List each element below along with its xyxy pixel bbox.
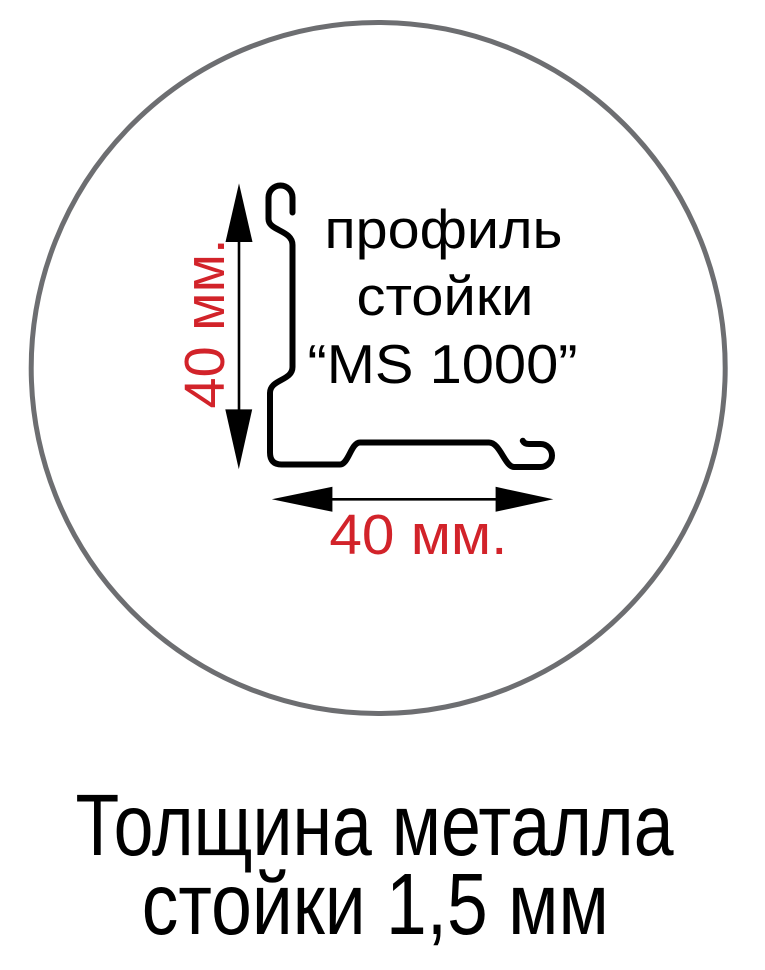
svg-text:“MS 1000”: “MS 1000” <box>308 333 578 395</box>
svg-text:стойки: стойки <box>357 265 534 327</box>
svg-text:40 мм.: 40 мм. <box>173 239 237 409</box>
svg-text:40 мм.: 40 мм. <box>329 503 507 567</box>
svg-text:стойки 1,5 мм: стойки 1,5 мм <box>142 856 609 953</box>
svg-text:профиль: профиль <box>325 198 563 260</box>
